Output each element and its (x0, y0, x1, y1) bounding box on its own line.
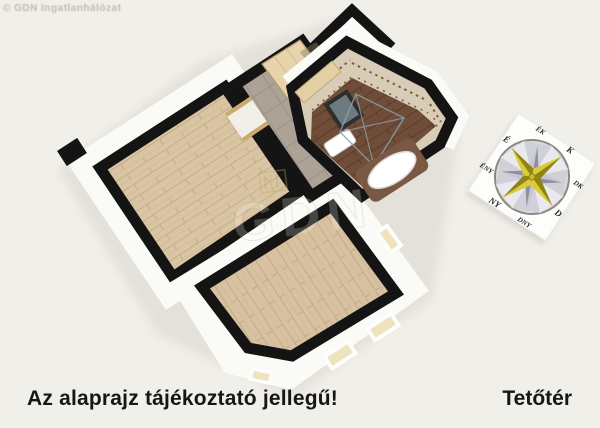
disclaimer-text: Az alaprajz tájékoztató jellegű! (27, 387, 338, 411)
compass-rose: É ÉK K DK D DNY NY ÉNY (460, 105, 600, 248)
floorplan-image: GDN (0, 0, 600, 428)
agency-watermark: © GDN Ingatlanhálózat (3, 3, 121, 14)
floorplan-canvas: GDN (0, 0, 600, 428)
floor-level-label: Tetőtér (502, 387, 572, 411)
